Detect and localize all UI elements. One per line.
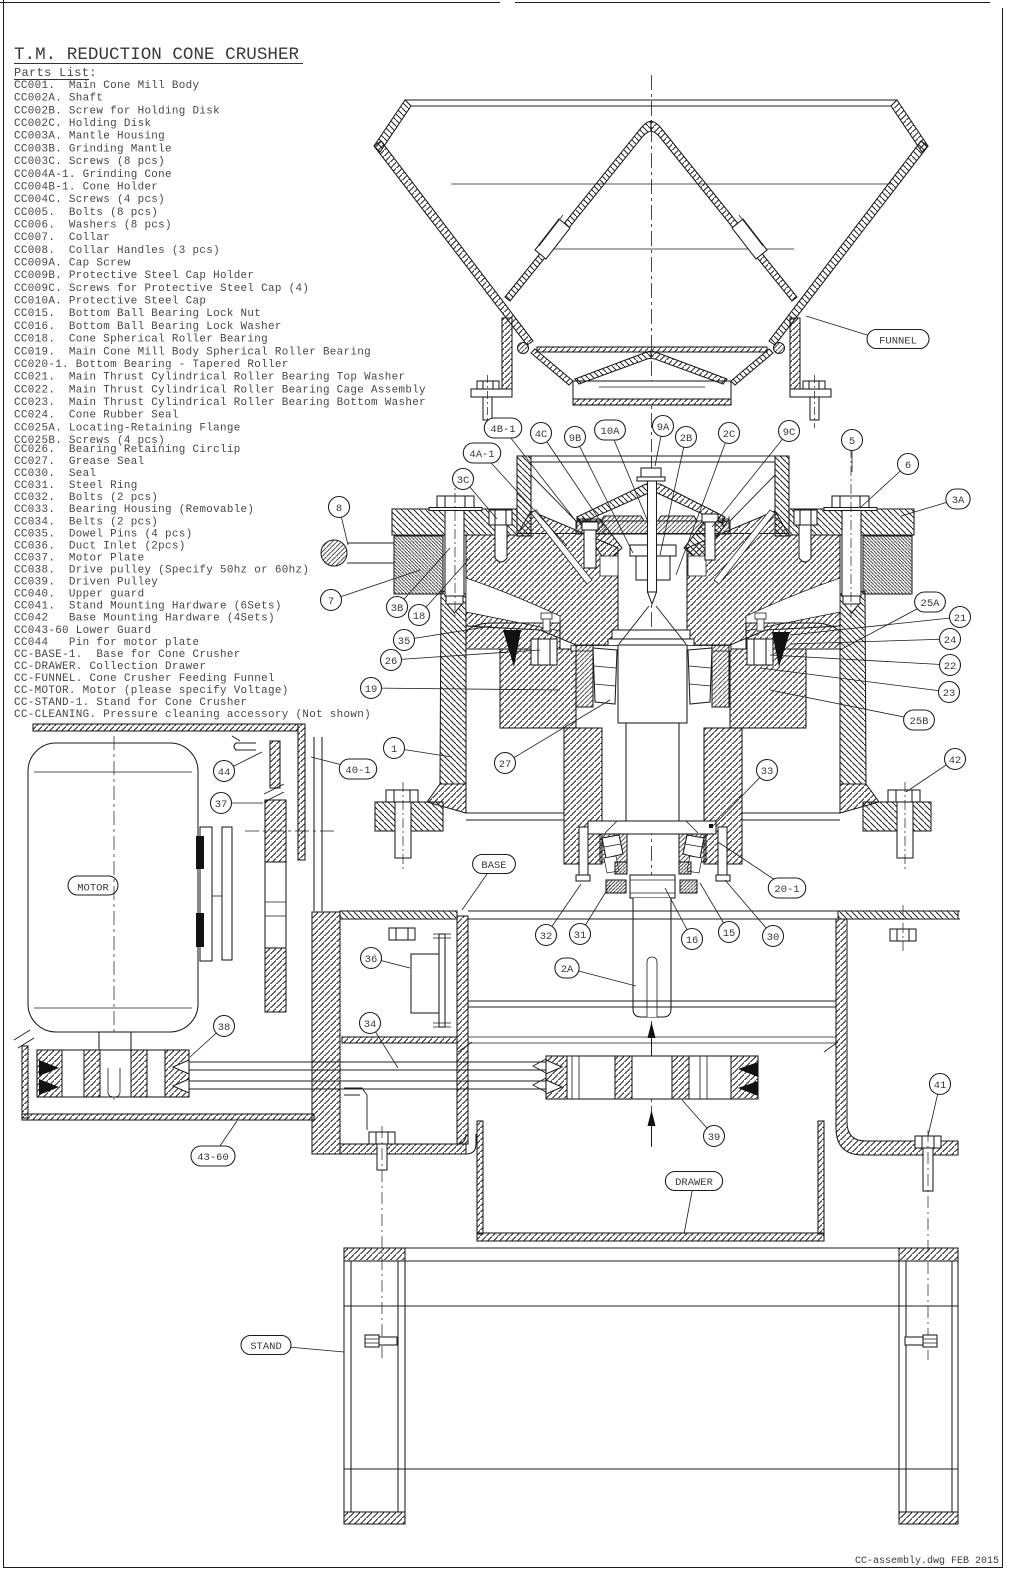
svg-text:CC-STAND-1. Stand for Cone Cru: CC-STAND-1. Stand for Cone Crusher: [14, 697, 247, 709]
svg-text:CC037. Motor Plate: CC037. Motor Plate: [14, 553, 144, 565]
svg-text:1: 1: [391, 744, 397, 756]
svg-text:CC042 Base Mounting Hardware: CC042 Base Mounting Hardware (4Sets): [14, 613, 275, 625]
svg-text:CC035. Dowel Pins (4 pcs): CC035. Dowel Pins (4 pcs): [14, 528, 193, 540]
svg-text:CC008. Collar Handles (3 pcs): CC008. Collar Handles (3 pcs): [14, 245, 220, 257]
svg-text:CC003C. Screws (8 pcs): CC003C. Screws (8 pcs): [14, 156, 165, 168]
svg-text:CC025A. Locating-Retaining Fla: CC025A. Locating-Retaining Flange: [14, 422, 241, 434]
svg-text:CC015. Bottom Ball Bearing Lo: CC015. Bottom Ball Bearing Lock Nut: [14, 308, 261, 320]
svg-text:STAND: STAND: [250, 1341, 282, 1353]
svg-text:6: 6: [905, 460, 911, 472]
svg-text:3B: 3B: [391, 603, 404, 615]
svg-text:MOTOR: MOTOR: [77, 883, 109, 895]
svg-text:27: 27: [499, 759, 512, 771]
svg-text:3A: 3A: [952, 495, 965, 507]
svg-text:4A-1: 4A-1: [469, 449, 494, 461]
svg-text:CC016. Bottom Ball Bearing Lo: CC016. Bottom Ball Bearing Lock Washer: [14, 321, 282, 333]
svg-text:CC-CLEANING. Pressure cleaning: CC-CLEANING. Pressure cleaning accessory…: [14, 709, 371, 721]
svg-text:23: 23: [943, 688, 956, 700]
svg-text:CC007. Collar: CC007. Collar: [14, 232, 110, 244]
svg-text:15: 15: [723, 928, 736, 940]
svg-text:CC-DRAWER. Collection Drawer: CC-DRAWER. Collection Drawer: [14, 661, 206, 673]
svg-text:CC032. Bolts (2 pcs): CC032. Bolts (2 pcs): [14, 492, 158, 504]
svg-text:CC023. Main Thrust Cylindrica: CC023. Main Thrust Cylindrical Roller Be…: [14, 397, 426, 409]
svg-text:CC010A. Protective Steel Cap: CC010A. Protective Steel Cap: [14, 296, 206, 308]
svg-text:CC019. Main Cone Mill Body Sp: CC019. Main Cone Mill Body Spherical Rol…: [14, 346, 371, 358]
svg-text:CC-MOTOR. Motor (please specif: CC-MOTOR. Motor (please specify Voltage): [14, 685, 289, 697]
svg-text:2C: 2C: [723, 429, 736, 441]
svg-text:7: 7: [328, 596, 334, 608]
svg-text:21: 21: [954, 613, 967, 625]
svg-text:30: 30: [767, 932, 780, 944]
svg-text:CC031. Steel Ring: CC031. Steel Ring: [14, 480, 138, 492]
svg-text:20-1: 20-1: [774, 884, 799, 896]
svg-text:CC043-60 Lower Guard: CC043-60 Lower Guard: [14, 625, 151, 637]
svg-text:CC036. Duct Inlet (2pcs): CC036. Duct Inlet (2pcs): [14, 540, 186, 552]
svg-text:33: 33: [761, 766, 774, 778]
svg-text:31: 31: [574, 930, 587, 942]
svg-text:FUNNEL: FUNNEL: [879, 336, 917, 348]
svg-text:CC005. Bolts (8 pcs): CC005. Bolts (8 pcs): [14, 207, 158, 219]
svg-text:3C: 3C: [457, 475, 470, 487]
svg-text:5: 5: [849, 436, 855, 448]
svg-text:34: 34: [364, 1019, 377, 1031]
svg-text:CC020-1. Bottom Bearing - Tape: CC020-1. Bottom Bearing - Tapered Roller: [14, 359, 289, 371]
svg-text:CC001. Main Cone Mill Body: CC001. Main Cone Mill Body: [14, 80, 200, 92]
svg-text:CC021. Main Thrust Cylindrica: CC021. Main Thrust Cylindrical Roller Be…: [14, 372, 405, 384]
svg-text:2B: 2B: [680, 433, 693, 445]
svg-text:T.M. REDUCTION CONE CRUSHER: T.M. REDUCTION CONE CRUSHER: [14, 45, 300, 65]
svg-text:CC-assembly.dwg FEB 2015: CC-assembly.dwg FEB 2015: [855, 1555, 999, 1567]
svg-text:32: 32: [540, 931, 553, 943]
svg-text:CC044 Pin for motor plate: CC044 Pin for motor plate: [14, 637, 199, 649]
svg-text:2A: 2A: [561, 964, 574, 976]
svg-text:DRAWER: DRAWER: [675, 1177, 714, 1189]
svg-text:CC006. Washers (8 pcs): CC006. Washers (8 pcs): [14, 220, 172, 232]
svg-text:10A: 10A: [601, 426, 621, 438]
svg-text:38: 38: [218, 1022, 231, 1034]
svg-text:36: 36: [365, 954, 378, 966]
svg-text:18: 18: [413, 611, 426, 623]
svg-text:8: 8: [336, 503, 342, 515]
svg-text:CC003B. Grinding Mantle: CC003B. Grinding Mantle: [14, 143, 172, 155]
svg-text:16: 16: [686, 935, 699, 947]
svg-text:BASE: BASE: [481, 860, 506, 872]
svg-text:43-60: 43-60: [197, 1152, 229, 1164]
svg-text:42: 42: [949, 755, 962, 767]
svg-text:4C: 4C: [535, 429, 548, 441]
svg-text:44: 44: [218, 767, 231, 779]
svg-text:9C: 9C: [783, 427, 796, 439]
svg-text:CC030. Seal: CC030. Seal: [14, 468, 96, 480]
svg-text:CC003A. Mantle Housing: CC003A. Mantle Housing: [14, 131, 165, 143]
svg-text:CC009C. Screws for Protective: CC009C. Screws for Protective Steel Cap …: [14, 283, 309, 295]
svg-text:CC038. Drive pulley (Specify: CC038. Drive pulley (Specify 50hz or 60h…: [14, 565, 309, 577]
svg-text:CC004C. Screws (4 pcs): CC004C. Screws (4 pcs): [14, 194, 165, 206]
svg-text:19: 19: [365, 684, 378, 696]
svg-text:CC-BASE-1. Base for Cone Crus: CC-BASE-1. Base for Cone Crusher: [14, 649, 241, 661]
svg-text:CC022. Main Thrust Cylindrica: CC022. Main Thrust Cylindrical Roller Be…: [14, 384, 426, 396]
svg-text:9A: 9A: [657, 422, 670, 434]
svg-text:22: 22: [944, 661, 957, 673]
svg-text:25A: 25A: [921, 598, 941, 610]
svg-text:CC-FUNNEL. Cone Crusher Feedin: CC-FUNNEL. Cone Crusher Feeding Funnel: [14, 673, 275, 685]
svg-text:35: 35: [398, 636, 411, 648]
svg-text:CC002A. Shaft: CC002A. Shaft: [14, 93, 103, 105]
svg-text:40-1: 40-1: [345, 765, 370, 777]
svg-text:CC018. Cone Spherical Roller: CC018. Cone Spherical Roller Bearing: [14, 334, 268, 346]
svg-text:26: 26: [385, 656, 398, 668]
svg-text:4B-1: 4B-1: [490, 424, 515, 436]
svg-text:CC027. Grease Seal: CC027. Grease Seal: [14, 456, 144, 468]
svg-text:CC041. Stand Mounting Hardwar: CC041. Stand Mounting Hardware (6Sets): [14, 601, 282, 613]
svg-text:CC002B. Screw for Holding Disk: CC002B. Screw for Holding Disk: [14, 105, 220, 117]
svg-text:Parts List:: Parts List:: [14, 66, 97, 80]
svg-text:CC004B-1. Cone Holder: CC004B-1. Cone Holder: [14, 181, 158, 193]
svg-text:25B: 25B: [910, 716, 929, 728]
svg-text:CC002C. Holding Disk: CC002C. Holding Disk: [14, 118, 151, 130]
svg-text:CC009A. Cap Screw: CC009A. Cap Screw: [14, 258, 131, 270]
svg-text:CC033. Bearing Housing (Remov: CC033. Bearing Housing (Removable): [14, 504, 254, 516]
svg-text:39: 39: [708, 1132, 721, 1144]
svg-text:CC040. Upper guard: CC040. Upper guard: [14, 589, 144, 601]
svg-text:CC026. Bearing Retaining Circ: CC026. Bearing Retaining Circlip: [14, 444, 241, 456]
svg-text:CC039. Driven Pulley: CC039. Driven Pulley: [14, 577, 158, 589]
svg-text:CC004A-1. Grinding Cone: CC004A-1. Grinding Cone: [14, 169, 172, 181]
svg-text:24: 24: [944, 635, 957, 647]
svg-text:37: 37: [215, 799, 228, 811]
svg-text:CC009B. Protective Steel Cap H: CC009B. Protective Steel Cap Holder: [14, 270, 254, 282]
svg-text:41: 41: [934, 1080, 947, 1092]
svg-text:9B: 9B: [569, 433, 582, 445]
svg-text:CC024. Cone Rubber Seal: CC024. Cone Rubber Seal: [14, 410, 179, 422]
svg-text:CC034. Belts (2 pcs): CC034. Belts (2 pcs): [14, 516, 158, 528]
